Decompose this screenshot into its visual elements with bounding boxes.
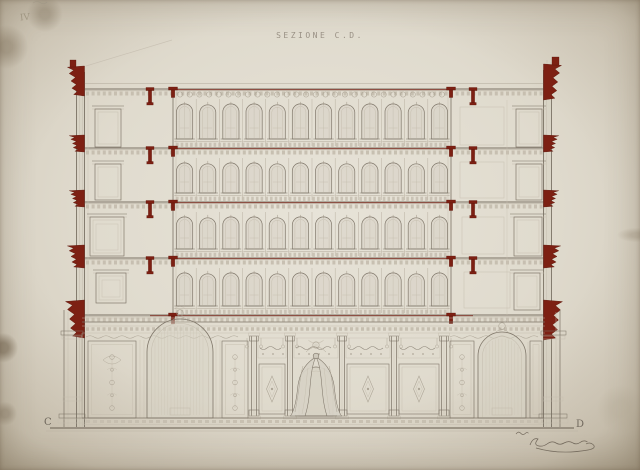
- section-marker-d: D: [576, 419, 584, 430]
- scanned-architectural-sheet: IV SEZIONE C.D. C D: [0, 0, 640, 470]
- architectural-section-drawing: [0, 0, 640, 470]
- roof-sketch-lines: [33, 2, 551, 74]
- section-marker-c: C: [44, 417, 52, 428]
- ground-floor-hall: [46, 307, 578, 432]
- architect-signature: [516, 432, 594, 452]
